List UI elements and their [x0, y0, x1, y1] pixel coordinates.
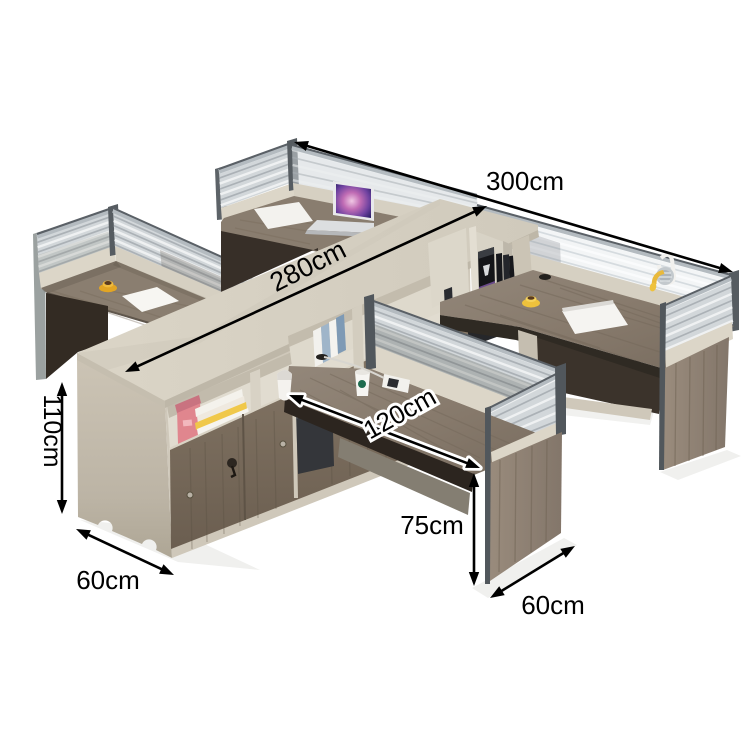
svg-text:300cm: 300cm [486, 166, 564, 196]
svg-text:110cm: 110cm [38, 394, 66, 467]
svg-text:75cm: 75cm [400, 510, 464, 540]
svg-text:60cm: 60cm [76, 565, 140, 595]
svg-text:60cm: 60cm [521, 590, 585, 620]
